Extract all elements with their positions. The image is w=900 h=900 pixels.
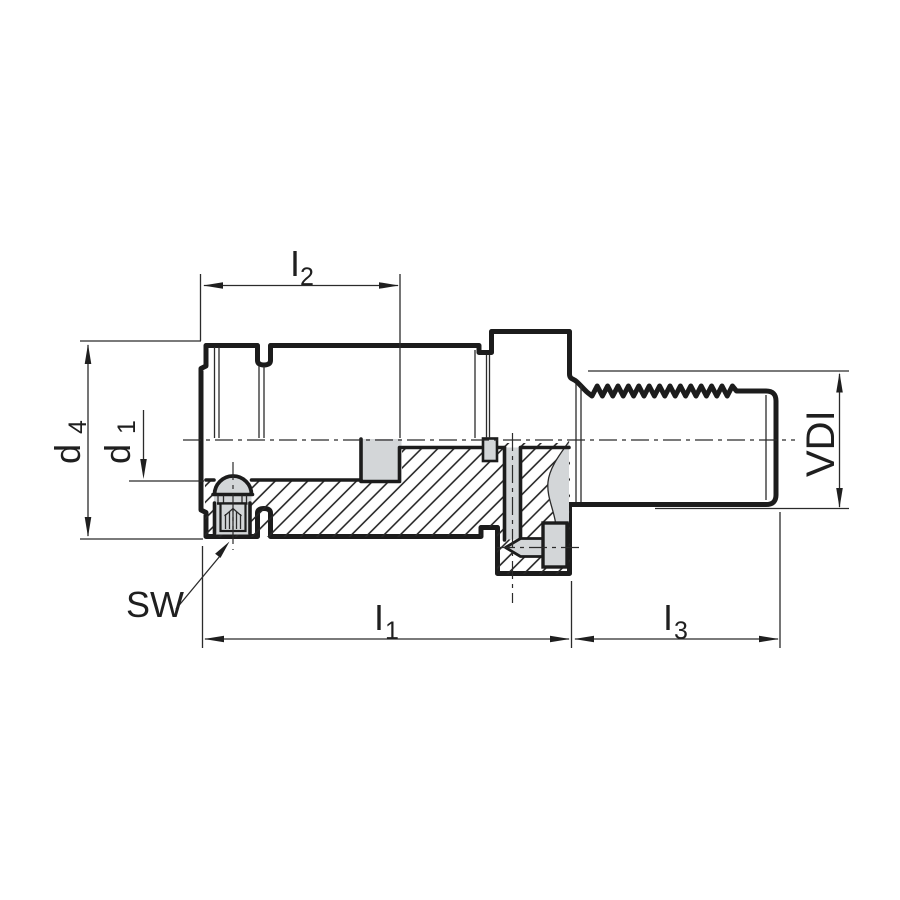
clamp-screw-body: [543, 523, 567, 567]
clamp-pin-hole: [505, 448, 521, 540]
joint-pin: [483, 439, 497, 462]
dim-label-i1: I: [374, 597, 384, 638]
dim-label-i3-sub: 3: [674, 617, 688, 645]
dim-label-vdi: VDI: [799, 410, 843, 477]
dim-label-i1-sub: 1: [385, 617, 399, 645]
bore-slot: [361, 439, 402, 483]
drawing-page: I 2 d 4 d 1 SW I 1 I 3: [0, 0, 900, 900]
dimension-i2: I 2: [201, 243, 401, 438]
part-drawing-svg: I 2 d 4 d 1 SW I 1 I 3: [0, 0, 900, 900]
dimension-d4: d 4: [47, 341, 203, 539]
dim-label-d4: d: [47, 444, 88, 464]
dim-label-i2-sub: 2: [300, 263, 314, 291]
dim-label-d1: d: [97, 444, 138, 464]
dimension-i3: I 3: [574, 512, 780, 648]
dim-label-i2: I: [290, 243, 300, 284]
dim-label-d4-sub: 4: [64, 420, 92, 434]
dim-label-sw: SW: [126, 584, 184, 625]
dim-label-d1-sub: 1: [113, 420, 141, 434]
dim-label-i3: I: [663, 597, 673, 638]
dimension-sw: SW: [126, 542, 230, 626]
dimension-d1: d 1: [97, 410, 204, 481]
